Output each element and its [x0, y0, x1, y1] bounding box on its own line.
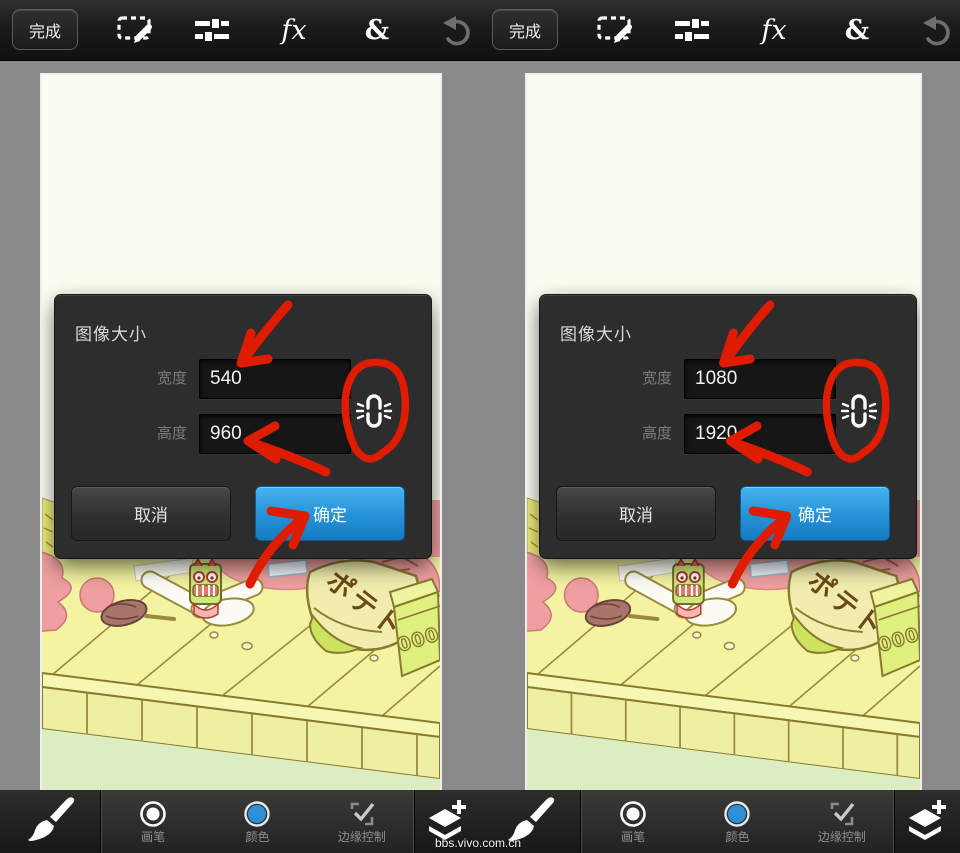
edge-control-icon [347, 799, 377, 829]
edge-control-label: 边缘控制 [338, 831, 386, 844]
blend-mode-icon[interactable]: & [836, 0, 878, 60]
fx-effects-icon[interactable]: fx [752, 0, 796, 60]
height-field[interactable] [199, 414, 351, 454]
dialog-title: 图像大小 [560, 320, 632, 345]
screenshot-panel-left: 完成 fx & [0, 0, 480, 853]
adjustments-icon[interactable] [192, 0, 232, 60]
height-label: 高度 [95, 414, 187, 454]
color-picker-button[interactable]: 颜色 [685, 790, 789, 853]
link-aspect-ratio-icon[interactable] [354, 389, 394, 433]
brush-settings-button[interactable]: 画笔 [101, 790, 205, 853]
done-button[interactable]: 完成 [492, 9, 558, 50]
fx-effects-icon[interactable]: fx [272, 0, 316, 60]
image-size-dialog: 图像大小 宽度 高度 [55, 295, 431, 558]
selection-tool-icon[interactable] [114, 0, 158, 60]
brush-settings-button[interactable]: 画笔 [581, 790, 685, 853]
image-size-dialog: 图像大小 宽度 高度 [540, 295, 916, 558]
width-field[interactable] [199, 359, 351, 399]
bottom-toolbar: 画笔 颜色 边缘控制 [480, 790, 960, 853]
tool-options-bar: 画笔 颜色 边缘控制 [100, 790, 415, 853]
undo-icon[interactable] [918, 0, 958, 60]
width-field[interactable] [684, 359, 836, 399]
blend-mode-icon[interactable]: & [356, 0, 398, 60]
add-layer-icon [903, 797, 951, 847]
paintbrush-icon [22, 796, 78, 848]
brush-size-icon [618, 799, 648, 829]
edge-control-button[interactable]: 边缘控制 [310, 790, 414, 853]
height-field[interactable] [684, 414, 836, 454]
selection-tool-icon[interactable] [594, 0, 638, 60]
undo-icon[interactable] [438, 0, 478, 60]
edge-control-icon [827, 799, 857, 829]
link-aspect-ratio-icon[interactable] [839, 389, 879, 433]
top-toolbar: 完成 fx & [480, 0, 960, 61]
edge-control-button[interactable]: 边缘控制 [790, 790, 894, 853]
drawing-canvas: 图像大小 宽度 高度 [527, 75, 920, 790]
brush-settings-label: 画笔 [621, 831, 645, 844]
screenshot-panel-right: 完成 fx & [480, 0, 960, 853]
brush-size-icon [138, 799, 168, 829]
watermark-text: bbs.vivo.com.cn [435, 836, 521, 850]
color-picker-label: 颜色 [245, 831, 269, 844]
cancel-button[interactable]: 取消 [71, 486, 231, 541]
brush-tool-button[interactable] [0, 790, 100, 853]
drawing-canvas: 图像大小 宽度 高度 [42, 75, 440, 790]
tool-options-bar: 画笔 颜色 边缘控制 [580, 790, 895, 853]
done-button[interactable]: 完成 [12, 9, 78, 50]
edge-control-label: 边缘控制 [818, 831, 866, 844]
width-label: 宽度 [580, 359, 672, 399]
color-swatch-icon [242, 799, 272, 829]
dialog-title: 图像大小 [75, 320, 147, 345]
width-label: 宽度 [95, 359, 187, 399]
ok-button[interactable]: 确定 [740, 486, 890, 541]
page: 完成 fx & [0, 0, 960, 853]
bottom-toolbar: 画笔 颜色 边缘控制 [0, 790, 480, 853]
adjustments-icon[interactable] [672, 0, 712, 60]
top-toolbar: 完成 fx & [0, 0, 480, 61]
ok-button[interactable]: 确定 [255, 486, 405, 541]
color-picker-button[interactable]: 颜色 [205, 790, 309, 853]
color-picker-label: 颜色 [725, 831, 749, 844]
brush-settings-label: 画笔 [141, 831, 165, 844]
layers-button[interactable] [893, 790, 960, 853]
cancel-button[interactable]: 取消 [556, 486, 716, 541]
height-label: 高度 [580, 414, 672, 454]
color-swatch-icon [722, 799, 752, 829]
